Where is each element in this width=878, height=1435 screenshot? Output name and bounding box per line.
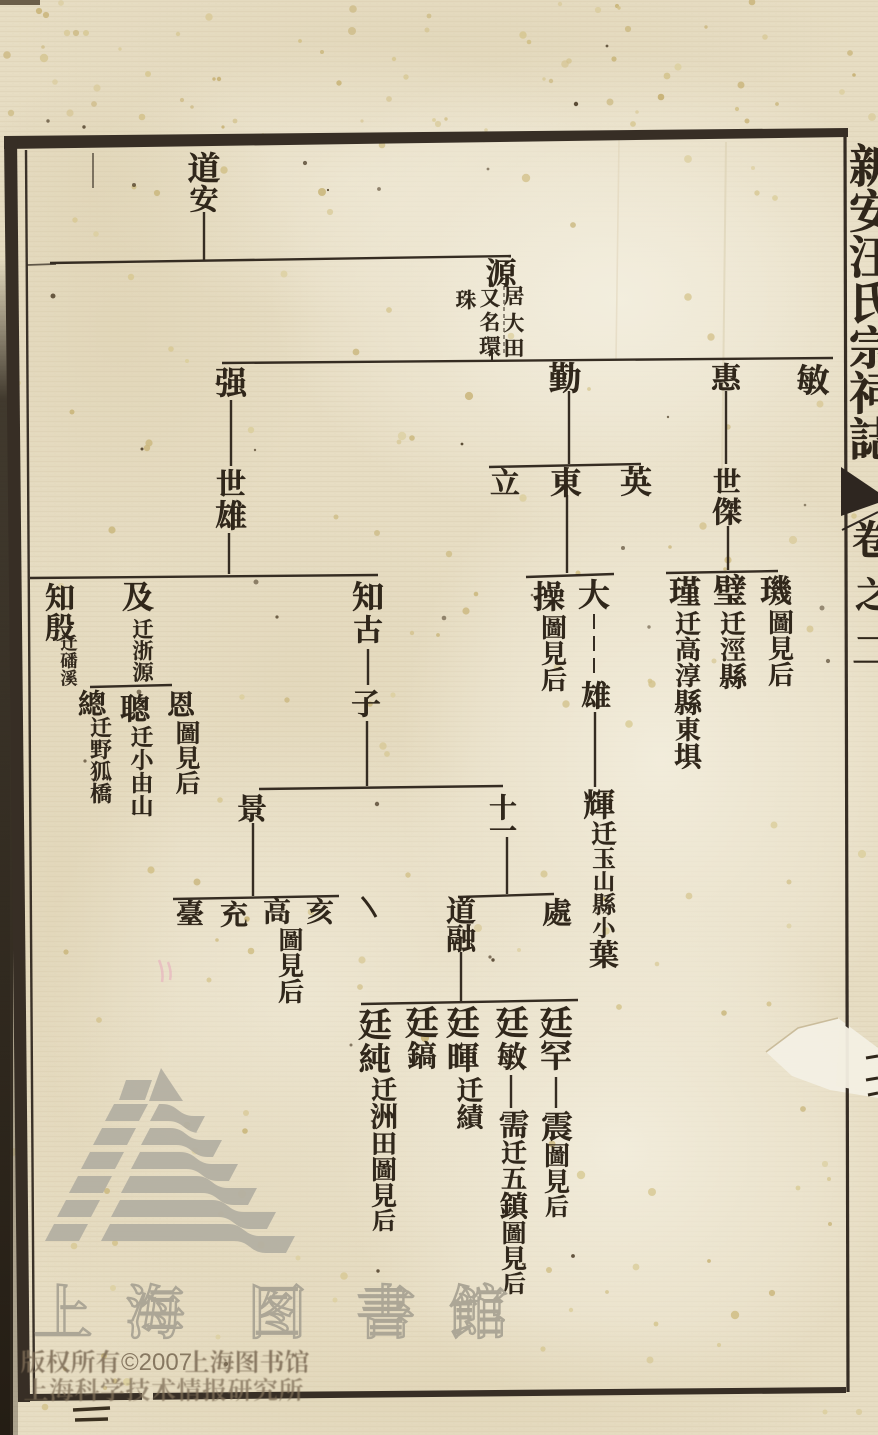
svg-text:©2007: ©2007: [121, 1349, 192, 1376]
